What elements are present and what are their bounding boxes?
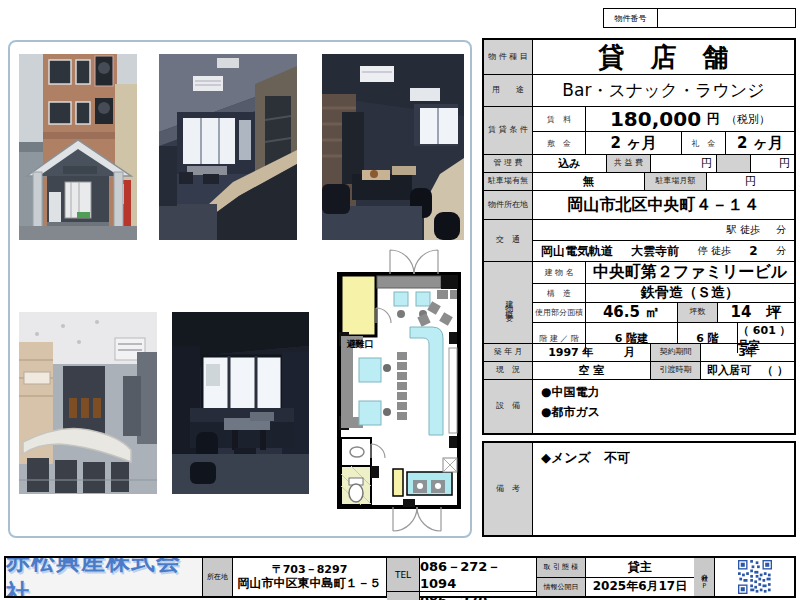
station-row: 駅 徒歩 分 [533, 220, 794, 240]
company-address: 岡山市中区東中島町１－５ [238, 576, 382, 591]
tel-label: TEL [387, 558, 419, 591]
company-name: 赤松興産株式会社 [6, 558, 202, 596]
structure-value: 鉄骨造（Ｓ造） [585, 284, 794, 302]
tram-row: 岡山電気軌道 大雲寺前 停 徒歩 2 分 [533, 240, 794, 261]
built-month: 月 [624, 345, 635, 360]
stop-min-unit: 分 [776, 244, 786, 258]
photo-interior-lounge [322, 54, 464, 240]
building-overview-label: 建物概要 [484, 262, 532, 343]
area-row: 使用部分面積 46.5 ㎡ 坪数 14 坪 [533, 302, 794, 322]
photo-panel: 避難口 [8, 40, 472, 538]
property-sheet: 物件番号 [0, 0, 800, 600]
handover-close-paren: ） [777, 363, 788, 378]
structure-label: 構 造 [533, 284, 585, 302]
company-hp-label: 会社ＨＰ [694, 558, 714, 596]
parking-fee-unit: 円 [706, 173, 794, 190]
tel-row: TEL 086－272－1094 [387, 558, 536, 591]
row-status: 現 況 空 室 引渡時期 即入居可 （ ） [484, 361, 794, 379]
company-address-cell: 〒703－8297 岡山市中区東中島町１－５ [232, 558, 386, 596]
interior-seating-image [172, 312, 309, 494]
rent-label: 賃 料 [533, 107, 585, 131]
built-date-label: 築 年 月 [484, 344, 532, 361]
area-label: 使用部分面積 [533, 303, 585, 322]
rent-tax-note: （税別） [726, 112, 770, 127]
publish-date-row: 情報公開日 2025年6月17日 [537, 577, 694, 597]
structure-row: 構 造 鉄骨造（Ｓ造） [533, 283, 794, 302]
common-fee-unit: 円 [650, 155, 716, 172]
stop-walk-min: 2 [749, 244, 757, 258]
fax-value: 086－270－0220 [419, 592, 536, 600]
deposit-value: 2 ヶ月 [585, 132, 681, 154]
use-value: Bar・スナック・ラウンジ [532, 75, 794, 106]
row-transport: 交 通 駅 徒歩 分 岡山電気軌道 大雲寺前 停 徒歩 2 分 [484, 219, 794, 261]
status-label: 現 況 [484, 362, 532, 379]
tram-cell: 岡山電気軌道 大雲寺前 停 徒歩 2 分 [533, 241, 794, 261]
property-type-label: 物 件 種 目 [484, 40, 532, 74]
rent-conditions-label: 賃 貸 条 件 [484, 107, 532, 154]
property-number-value [658, 9, 795, 27]
row-use: 用 途 Bar・スナック・ラウンジ [484, 74, 794, 106]
interior-lounge-image [322, 54, 464, 240]
extra-fee-unit: 円 [750, 155, 794, 172]
row-management-fee: 管 理 費 込み 共 益 費 円 円 [484, 154, 794, 172]
photo-bar-counter [19, 312, 157, 494]
row-building-overview: 建物概要 建 物 名 中央町第２ファミリービル 構 造 鉄骨造（Ｓ造） 使用部分… [484, 261, 794, 343]
qr-cell [714, 558, 794, 596]
tram-line-name: 岡山電気軌道 [541, 243, 613, 260]
equipment-label: 設 備 [484, 380, 532, 433]
deal-type-row: 取 引 態 様 貸主 [537, 558, 694, 577]
area-value: 46.5 ㎡ [585, 303, 677, 322]
rent-row: 賃 料 180,000 円 （税別） [533, 107, 794, 131]
deal-type-value: 貸主 [585, 558, 694, 577]
photo-building-exterior [19, 54, 137, 240]
row-parking: 駐車場有無 無 駐車場月額 円 [484, 172, 794, 190]
management-fee-label: 管 理 費 [484, 155, 532, 172]
rent-value-cell: 180,000 円 （税別） [585, 107, 794, 131]
building-name-row: 建 物 名 中央町第２ファミリービル [533, 262, 794, 283]
deal-type-label: 取 引 態 様 [537, 558, 585, 577]
parking-value: 無 [532, 173, 644, 190]
use-label: 用 途 [484, 75, 532, 106]
publish-date-label: 情報公開日 [537, 578, 585, 597]
station-min-unit: 分 [776, 223, 786, 237]
tram-stop-name: 大雲寺前 [631, 243, 679, 260]
building-exterior-image [19, 54, 137, 240]
remarks-label: 備 考 [484, 443, 532, 535]
location-value: 岡山市北区中央町４－１４ [532, 191, 794, 219]
phone-column: TEL 086－272－1094 FAX 086－270－0220 [386, 558, 536, 596]
emergency-exit-label: 避難口 [340, 338, 380, 351]
parking-label: 駐車場有無 [484, 173, 532, 190]
transport-label: 交 通 [484, 220, 532, 261]
row-equipment: 設 備 ●中国電力 ●都市ガス [484, 379, 794, 433]
tsubo-value: 14 坪 [717, 303, 794, 322]
publish-date-value: 2025年6月17日 [585, 578, 694, 597]
contract-period-value: 3年 [700, 344, 794, 361]
building-name-value: 中央町第２ファミリービル [585, 262, 794, 283]
station-cell: 駅 徒歩 分 [533, 220, 794, 240]
key-money-value: 2 ヶ月 [725, 132, 794, 154]
equipment-item-power: ●中国電力 [541, 384, 599, 401]
status-value: 空 室 [532, 362, 650, 379]
handover-label: 引渡時期 [650, 362, 700, 379]
handover-value: 即入居可 （ [707, 363, 773, 378]
contract-period-label: 契約期間 [650, 344, 700, 361]
photo-interior-seating [172, 312, 309, 494]
remarks-box: 備 考 ◆メンズ 不可 [482, 441, 796, 537]
tsubo-label: 坪数 [677, 303, 717, 322]
deal-column: 取 引 態 様 貸主 情報公開日 2025年6月17日 [536, 558, 694, 596]
station-walk-text: 駅 徒歩 [727, 223, 760, 237]
property-number-box: 物件番号 [603, 8, 796, 28]
qr-code-icon [738, 560, 772, 594]
deposit-row: 敷 金 2 ヶ月 礼 金 2 ヶ月 [533, 131, 794, 154]
bar-counter-image [19, 312, 157, 494]
floor-plan [337, 248, 461, 538]
equipment-cell: ●中国電力 ●都市ガス [532, 380, 794, 433]
remarks-text: ◆メンズ 不可 [532, 443, 794, 535]
property-type-value: 貸店舗 [532, 40, 794, 74]
property-number-label: 物件番号 [604, 9, 658, 27]
location-label: 物件所在地 [484, 191, 532, 219]
row-location: 物件所在地 岡山市北区中央町４－１４ [484, 190, 794, 219]
footer-bar: 赤松興産株式会社 所在地 〒703－8297 岡山市中区東中島町１－５ TEL … [4, 556, 796, 598]
fax-label: FAX [387, 592, 419, 600]
property-info-table: 物 件 種 目 貸店舗 用 途 Bar・スナック・ラウンジ 賃 貸 条 件 賃 … [482, 38, 796, 435]
building-name-label: 建 物 名 [533, 262, 585, 283]
rent-yen: 円 [707, 110, 720, 128]
stop-walk-text: 停 徒歩 [698, 244, 731, 258]
built-year: 1997 年 [548, 345, 593, 360]
row-property-type: 物 件 種 目 貸店舗 [484, 40, 794, 74]
interior-bar-room-image [159, 54, 297, 240]
deposit-label: 敷 金 [533, 132, 585, 154]
rent-amount: 180,000 [610, 107, 701, 131]
row-rent-conditions: 賃 貸 条 件 賃 料 180,000 円 （税別） 敷 金 2 ヶ月 礼 金 … [484, 106, 794, 154]
tel-value: 086－272－1094 [419, 558, 536, 591]
fax-row: FAX 086－270－0220 [387, 591, 536, 600]
key-money-label: 礼 金 [681, 132, 725, 154]
company-address-label: 所在地 [202, 558, 232, 596]
equipment-item-gas: ●都市ガス [541, 404, 600, 421]
photo-interior-bar-room [159, 54, 297, 240]
floor-plan-image [337, 248, 461, 538]
built-date-cell: 1997 年 月 [532, 344, 650, 361]
handover-cell: 即入居可 （ ） [700, 362, 794, 379]
company-postal-code: 〒703－8297 [272, 563, 348, 577]
common-fee-label: 共 益 費 [606, 155, 650, 172]
row-built-date: 築 年 月 1997 年 月 契約期間 3年 [484, 343, 794, 361]
management-fee-value: 込み [532, 155, 606, 172]
blank-fee-label [716, 155, 750, 172]
parking-fee-label: 駐車場月額 [644, 173, 706, 190]
